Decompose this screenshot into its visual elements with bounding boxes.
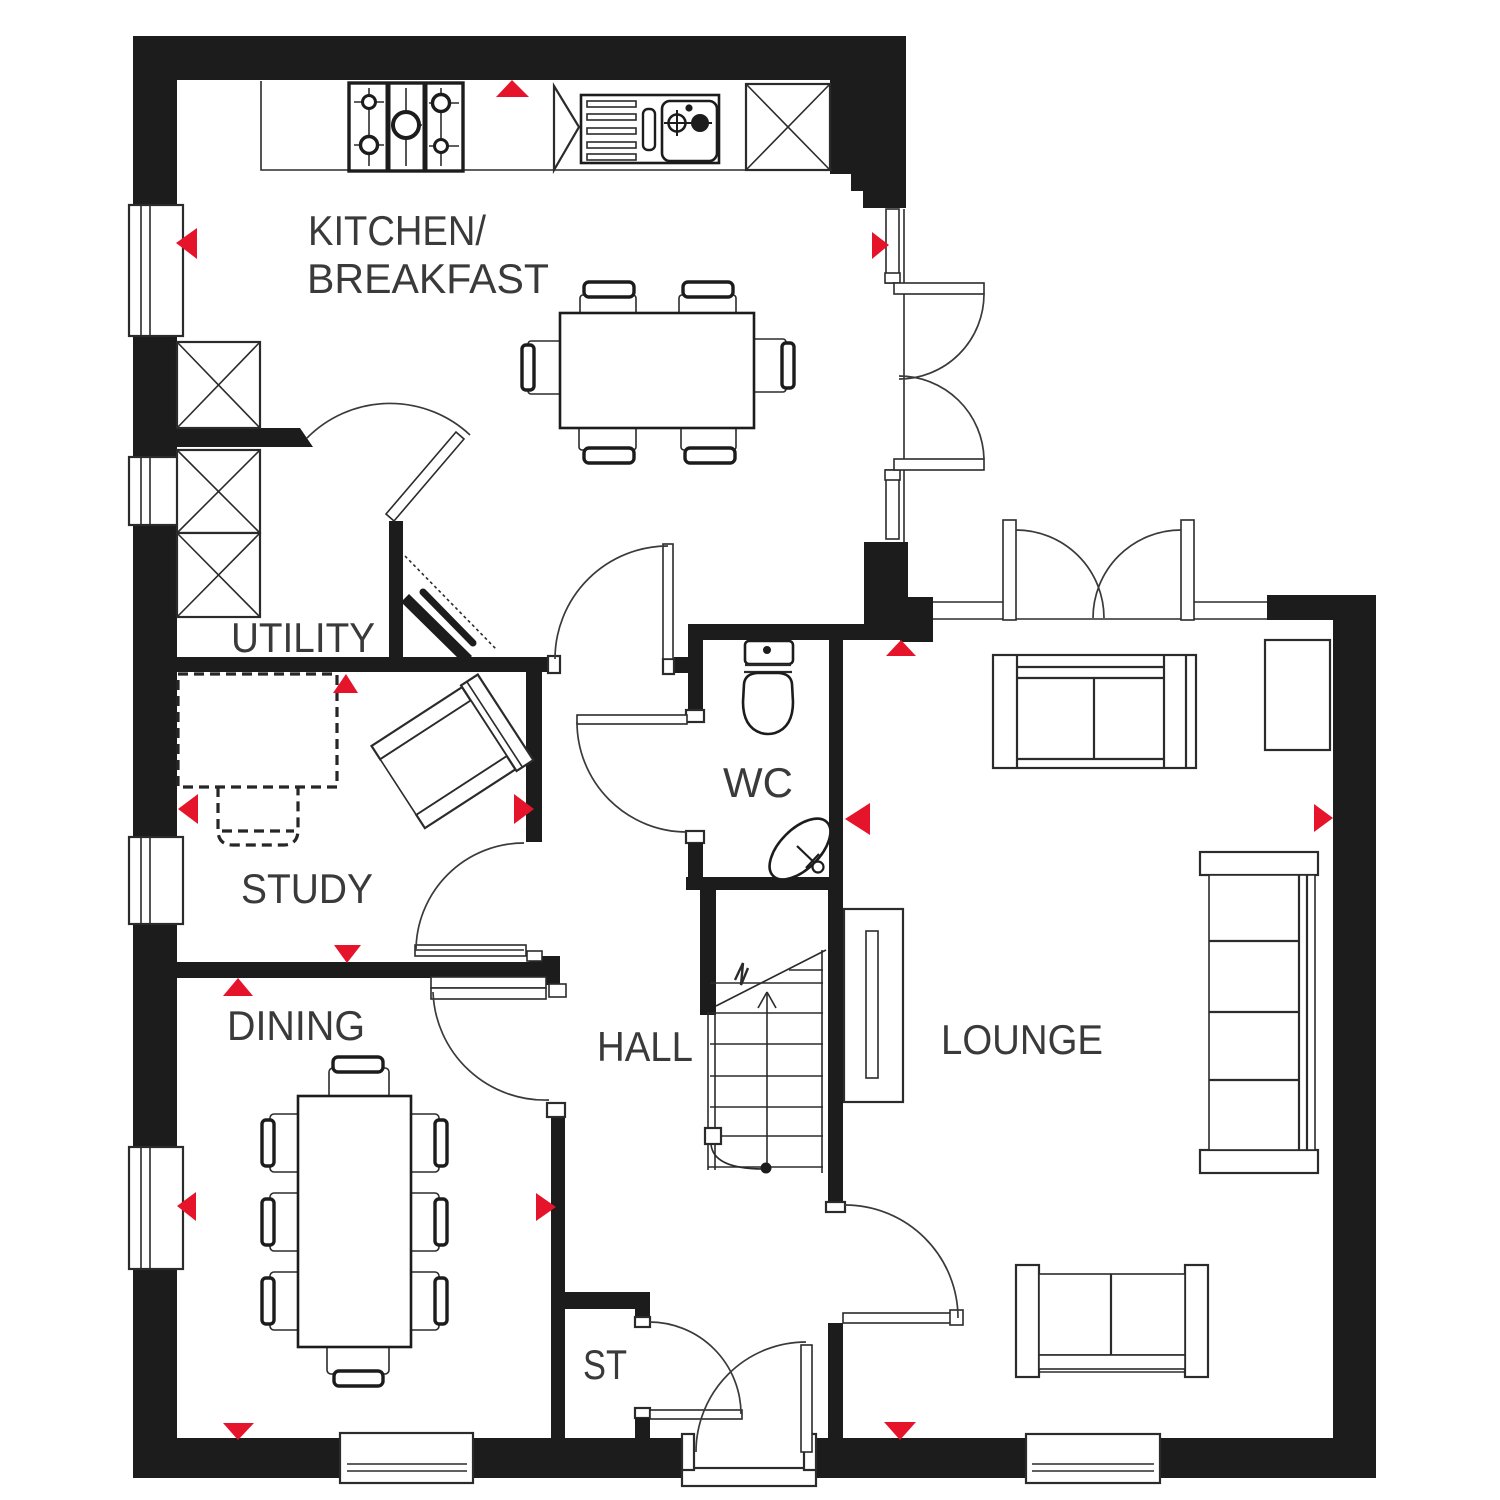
svg-text:LOUNGE: LOUNGE: [941, 1016, 1103, 1063]
svg-text:HALL: HALL: [597, 1023, 693, 1070]
svg-text:BREAKFAST: BREAKFAST: [307, 255, 549, 302]
svg-text:STUDY: STUDY: [241, 865, 373, 912]
svg-text:DINING: DINING: [227, 1002, 365, 1049]
svg-text:ST: ST: [583, 1341, 627, 1388]
svg-text:KITCHEN/: KITCHEN/: [308, 207, 486, 254]
svg-text:UTILITY: UTILITY: [231, 614, 375, 661]
svg-text:WC: WC: [723, 759, 793, 806]
